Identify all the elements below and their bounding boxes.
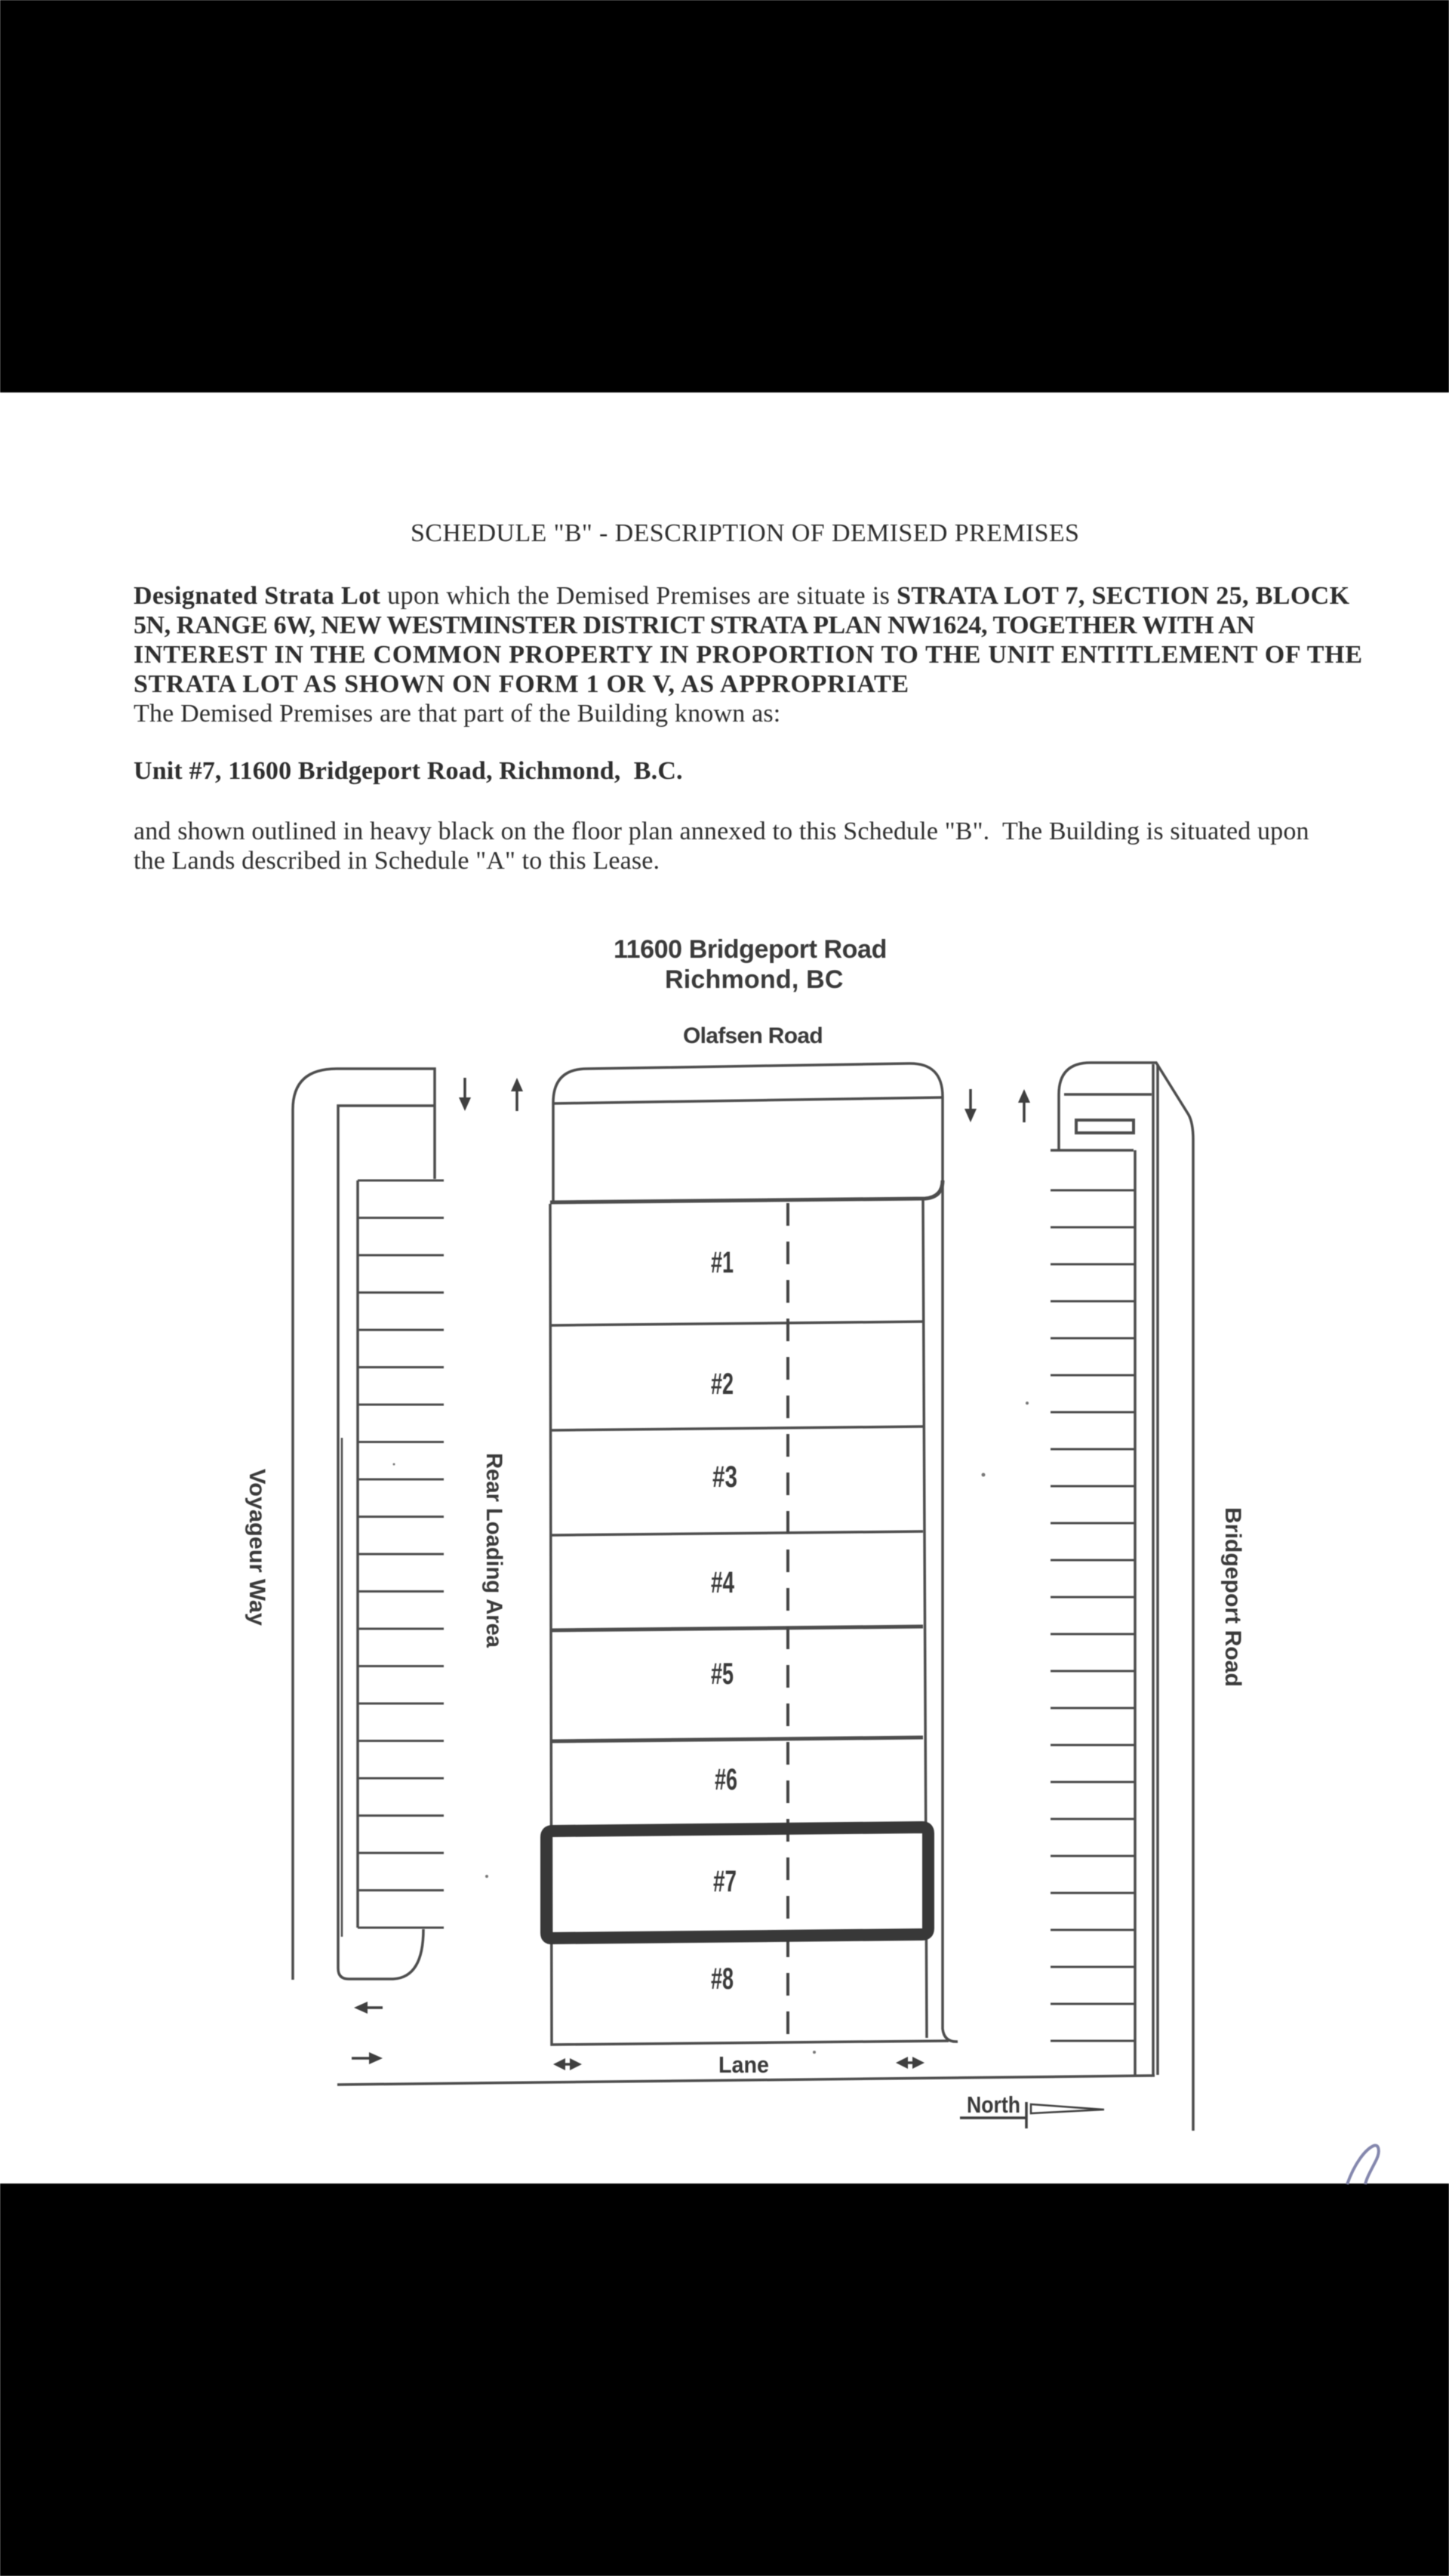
svg-text:#2: #2: [711, 1368, 734, 1401]
svg-text:#5: #5: [711, 1657, 734, 1691]
svg-text:#8: #8: [711, 1962, 734, 1996]
svg-text:#4: #4: [711, 1566, 735, 1599]
svg-text:Voyageur Way: Voyageur Way: [245, 1469, 269, 1626]
svg-text:North: North: [967, 2091, 1020, 2118]
svg-text:#3: #3: [712, 1460, 737, 1494]
svg-text:#1: #1: [711, 1246, 734, 1279]
svg-text:Rear Loading Area: Rear Loading Area: [481, 1453, 506, 1648]
svg-text:Lane: Lane: [718, 2051, 769, 2078]
svg-text:#6: #6: [715, 1763, 737, 1796]
svg-text:Bridgeport Road: Bridgeport Road: [1220, 1507, 1245, 1687]
svg-text:#7: #7: [713, 1865, 737, 1898]
